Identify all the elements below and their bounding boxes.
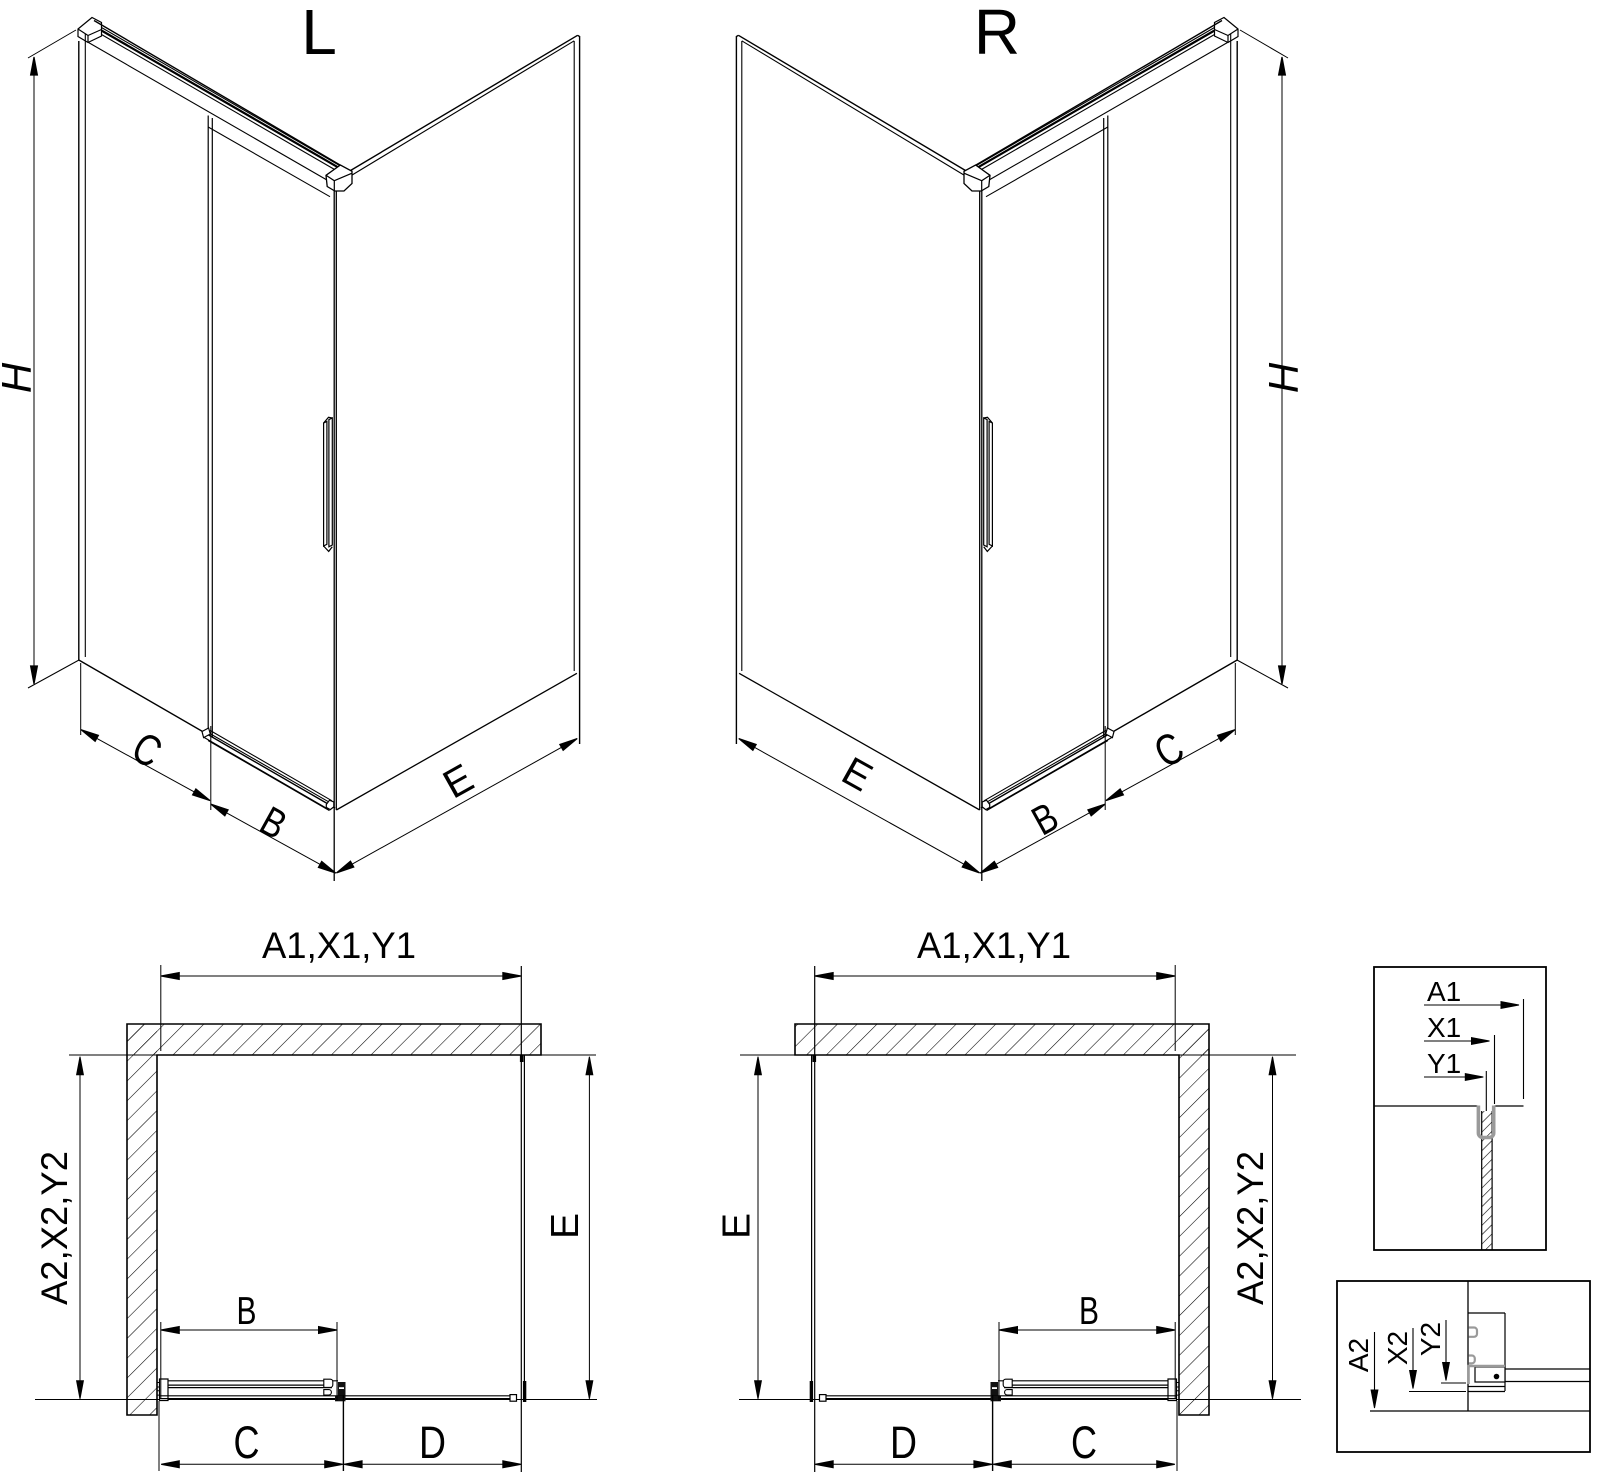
- svg-text:E: E: [716, 1213, 759, 1239]
- svg-text:C: C: [234, 1417, 260, 1468]
- svg-text:A2,X2,Y2: A2,X2,Y2: [34, 1151, 75, 1305]
- svg-text:D: D: [890, 1417, 917, 1468]
- svg-text:Y2: Y2: [1415, 1322, 1446, 1356]
- svg-text:X2: X2: [1382, 1331, 1413, 1365]
- svg-text:H: H: [0, 362, 40, 393]
- svg-text:H: H: [1260, 362, 1307, 393]
- svg-text:X1: X1: [1427, 1012, 1461, 1043]
- svg-text:A2,X2,Y2: A2,X2,Y2: [1230, 1151, 1271, 1305]
- svg-text:R: R: [974, 0, 1020, 68]
- svg-text:A1,X1,Y1: A1,X1,Y1: [917, 925, 1071, 966]
- svg-text:A1: A1: [1427, 976, 1461, 1007]
- svg-text:D: D: [419, 1417, 446, 1468]
- svg-text:B: B: [237, 1290, 257, 1333]
- svg-text:C: C: [1071, 1417, 1097, 1468]
- svg-text:A1,X1,Y1: A1,X1,Y1: [262, 925, 416, 966]
- svg-text:Y1: Y1: [1427, 1048, 1461, 1079]
- svg-text:A2: A2: [1343, 1338, 1374, 1372]
- svg-text:B: B: [1079, 1290, 1099, 1333]
- svg-text:L: L: [301, 0, 337, 68]
- svg-text:E: E: [544, 1213, 587, 1239]
